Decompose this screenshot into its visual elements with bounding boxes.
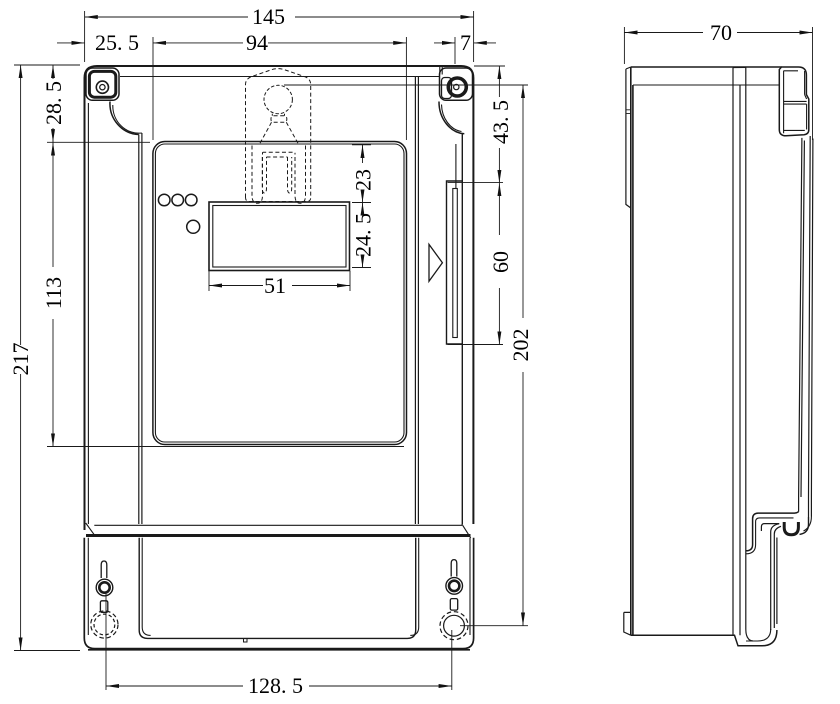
svg-text:217: 217 <box>8 343 33 376</box>
svg-text:113: 113 <box>41 277 66 309</box>
svg-text:28. 5: 28. 5 <box>41 81 66 125</box>
svg-text:51: 51 <box>264 273 286 298</box>
svg-text:70: 70 <box>710 20 732 45</box>
svg-text:202: 202 <box>508 329 533 362</box>
svg-text:43. 5: 43. 5 <box>488 100 513 144</box>
svg-text:24. 5: 24. 5 <box>351 213 376 257</box>
svg-text:25. 5: 25. 5 <box>95 30 139 55</box>
svg-text:128. 5: 128. 5 <box>248 673 303 698</box>
svg-text:145: 145 <box>252 4 285 29</box>
svg-text:60: 60 <box>488 251 513 273</box>
svg-text:23: 23 <box>351 169 376 191</box>
svg-text:94: 94 <box>246 30 268 55</box>
svg-text:7: 7 <box>460 30 471 55</box>
